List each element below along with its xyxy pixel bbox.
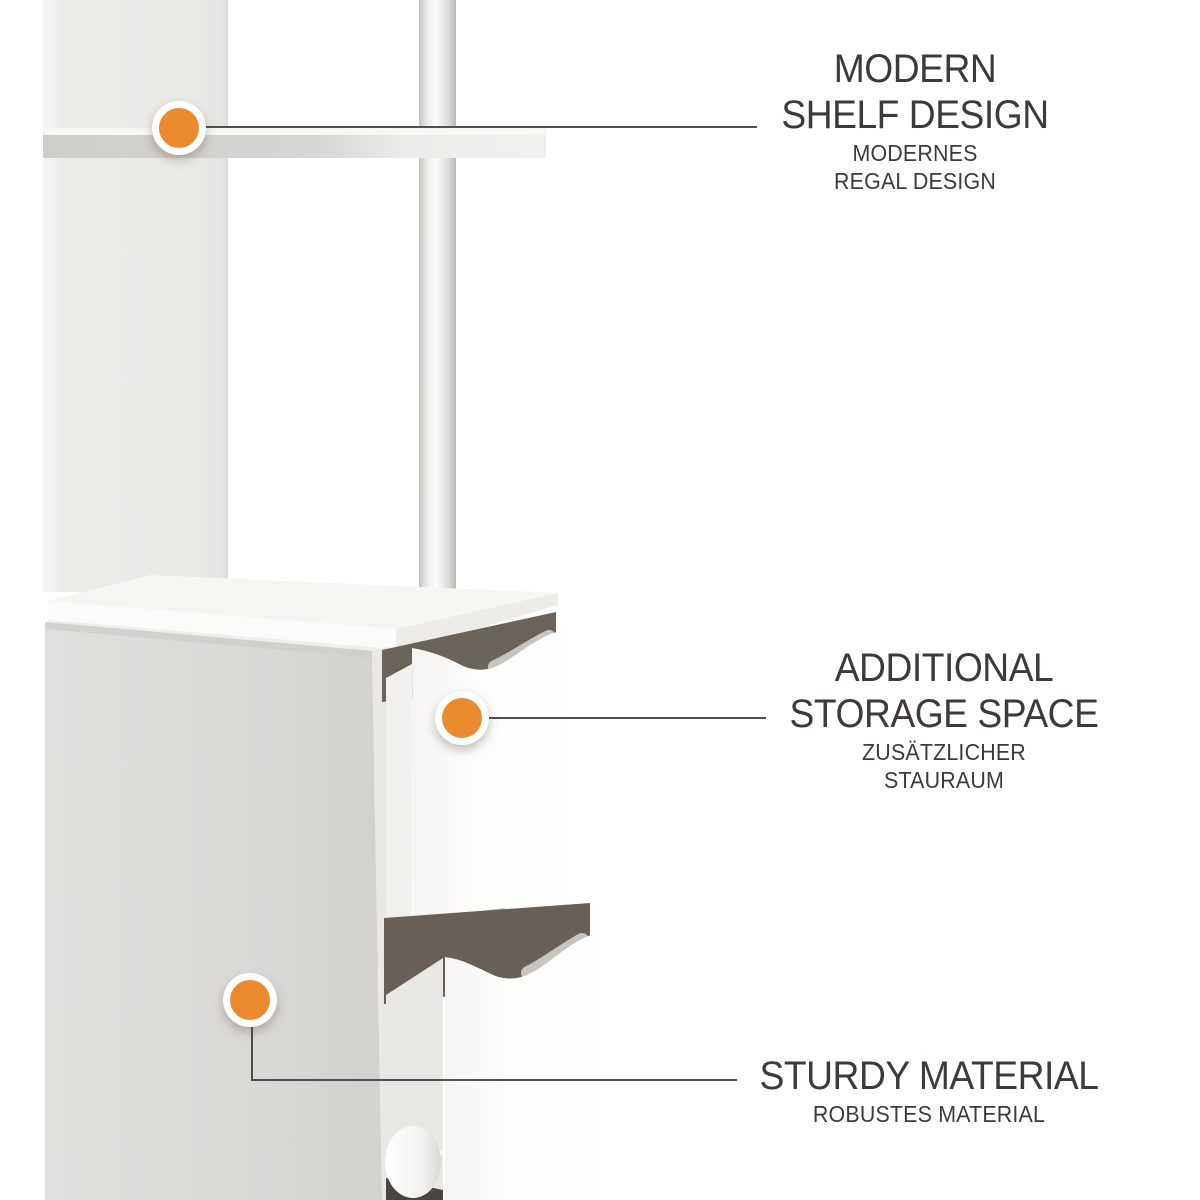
feature-callout-storage: ADDITIONAL STORAGE SPACE ZUSÄTZLICHER ST… (763, 645, 1126, 793)
feature-marker-shelf (152, 101, 206, 155)
callout-line-material-horizontal (251, 1079, 737, 1081)
product-infographic: MODERN SHELF DESIGN MODERNES REGAL DESIG… (0, 0, 1200, 1200)
feature-callout-shelf: MODERN SHELF DESIGN MODERNES REGAL DESIG… (734, 46, 1097, 194)
feature-marker-storage (435, 691, 489, 745)
feature-title-line: STURDY MATERIAL (748, 1053, 1111, 1099)
feature-title-line: ADDITIONAL (763, 645, 1126, 691)
marker-dot-icon (442, 698, 482, 738)
feature-subtitle-line: REGAL DESIGN (734, 168, 1097, 194)
cabinet-shelf (43, 128, 546, 158)
cabinet-body (45, 622, 400, 1200)
feature-title-line: MODERN (734, 46, 1097, 92)
callout-line-material-vertical (251, 1026, 253, 1081)
callout-line-storage (488, 717, 766, 719)
feature-title-line: STORAGE SPACE (763, 691, 1126, 737)
feature-subtitle-line: MODERNES (734, 140, 1097, 166)
top-drawer (386, 627, 595, 938)
cabinet-pole (419, 0, 456, 605)
feature-subtitle-line: STAURAUM (763, 767, 1126, 793)
feature-marker-material (223, 973, 277, 1027)
marker-dot-icon (159, 108, 199, 148)
marker-dot-icon (230, 980, 270, 1020)
callout-line-shelf (205, 126, 757, 128)
feature-title-line: SHELF DESIGN (734, 92, 1097, 138)
paper-roll (385, 1126, 441, 1198)
feature-subtitle-line: ROBUSTES MATERIAL (748, 1101, 1111, 1127)
feature-callout-material: STURDY MATERIAL ROBUSTES MATERIAL (748, 1053, 1111, 1127)
cabinet-back-panel (43, 0, 228, 592)
feature-subtitle-line: ZUSÄTZLICHER (763, 739, 1126, 765)
bottom-drawer (445, 930, 622, 1200)
